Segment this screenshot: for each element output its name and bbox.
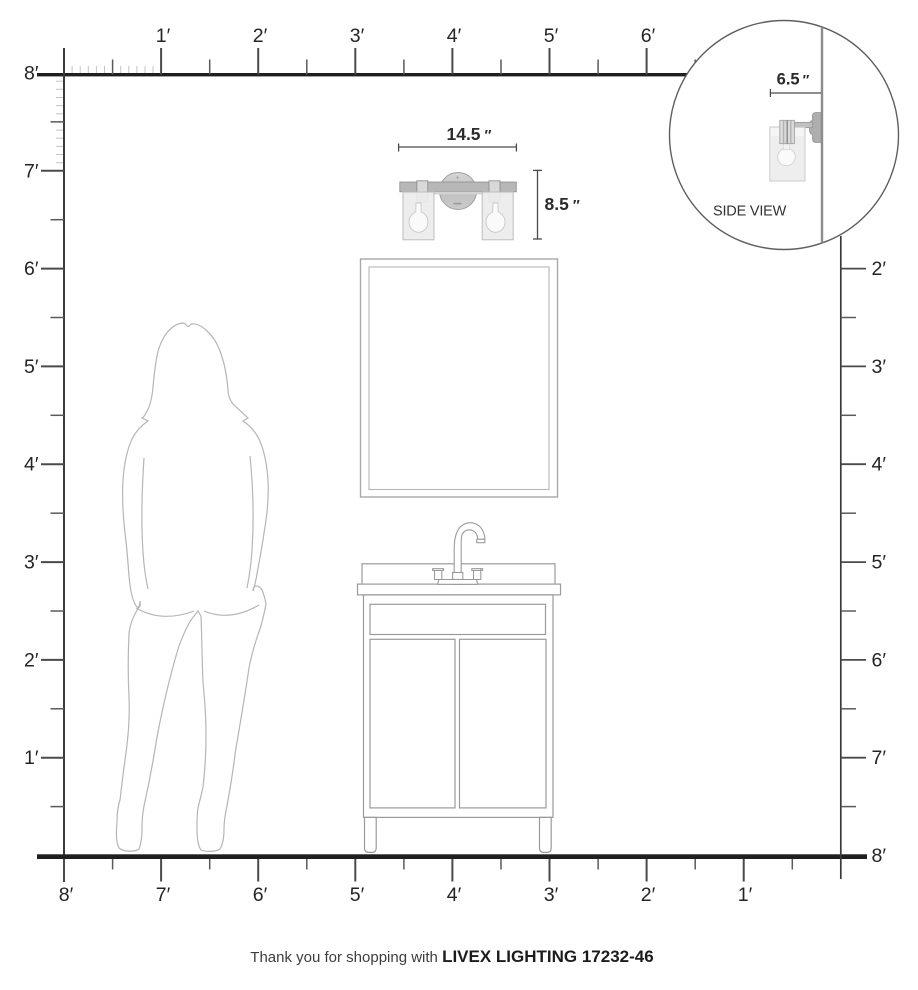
svg-text:6′: 6′ [253,884,268,906]
svg-text:3′: 3′ [544,884,559,906]
svg-text:8′: 8′ [59,884,74,906]
svg-text:5′: 5′ [872,552,887,574]
svg-text:2′: 2′ [641,884,656,906]
svg-text:3′: 3′ [24,552,39,574]
svg-text:Thank you for shopping with LI: Thank you for shopping with LIVEX LIGHTI… [250,947,653,966]
svg-text:SIDE VIEW: SIDE VIEW [713,204,787,220]
svg-text:6′: 6′ [24,258,39,280]
svg-text:8.5″: 8.5″ [545,194,580,214]
svg-text:5′: 5′ [24,356,39,378]
svg-text:7′: 7′ [24,160,39,182]
svg-text:5′: 5′ [350,884,365,906]
svg-text:8′: 8′ [24,63,39,85]
svg-text:4′: 4′ [447,884,462,906]
svg-text:3′: 3′ [350,25,365,47]
svg-text:7′: 7′ [872,747,887,769]
svg-text:14.5″: 14.5″ [446,124,491,144]
svg-text:7′: 7′ [156,884,171,906]
svg-text:6′: 6′ [641,25,656,47]
svg-text:4′: 4′ [447,25,462,47]
svg-text:6′: 6′ [872,649,887,671]
svg-text:1′: 1′ [156,25,171,47]
svg-text:8′: 8′ [872,845,887,867]
svg-text:5′: 5′ [544,25,559,47]
svg-text:1′: 1′ [24,747,39,769]
svg-text:2′: 2′ [253,25,268,47]
svg-text:4′: 4′ [872,454,887,476]
svg-text:1′: 1′ [738,884,753,906]
svg-text:2′: 2′ [24,649,39,671]
svg-text:4′: 4′ [24,454,39,476]
svg-text:3′: 3′ [872,356,887,378]
svg-text:6.5″: 6.5″ [777,71,810,89]
svg-text:2′: 2′ [872,258,887,280]
